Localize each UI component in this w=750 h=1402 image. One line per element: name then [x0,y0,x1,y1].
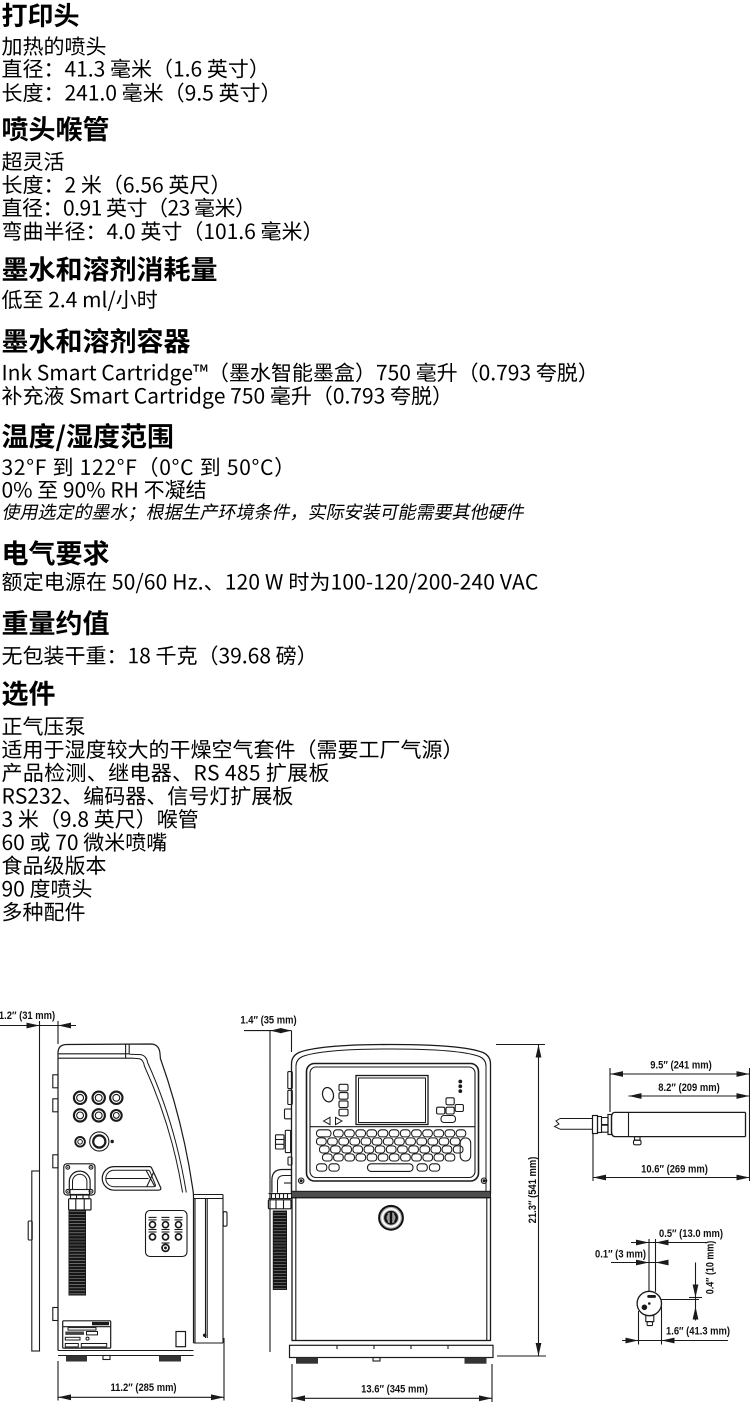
svg-text:1.4″ (35 mm): 1.4″ (35 mm) [240,1015,296,1027]
svg-text:9.5″ (241 mm): 9.5″ (241 mm) [650,1060,711,1072]
svg-text:8.2″ (209 mm): 8.2″ (209 mm) [658,1082,719,1094]
svg-text:11.2″ (285 mm): 11.2″ (285 mm) [110,1382,176,1394]
svg-text:10.6″ (269 mm): 10.6″ (269 mm) [641,1164,708,1176]
svg-text:21.3″ (541 mm): 21.3″ (541 mm) [527,1157,539,1224]
svg-text:1.6″ (41.3 mm): 1.6″ (41.3 mm) [666,1326,730,1338]
svg-text:0.5″ (13.0 mm): 0.5″ (13.0 mm) [659,1228,723,1240]
svg-text:0.1″ (3 mm): 0.1″ (3 mm) [595,1249,646,1261]
svg-text:0.4″ (10 mm): 0.4″ (10 mm) [705,1241,717,1295]
svg-text:1.2″ (31 mm): 1.2″ (31 mm) [0,1010,55,1022]
svg-text:13.6″ (345 mm): 13.6″ (345 mm) [361,1384,428,1396]
